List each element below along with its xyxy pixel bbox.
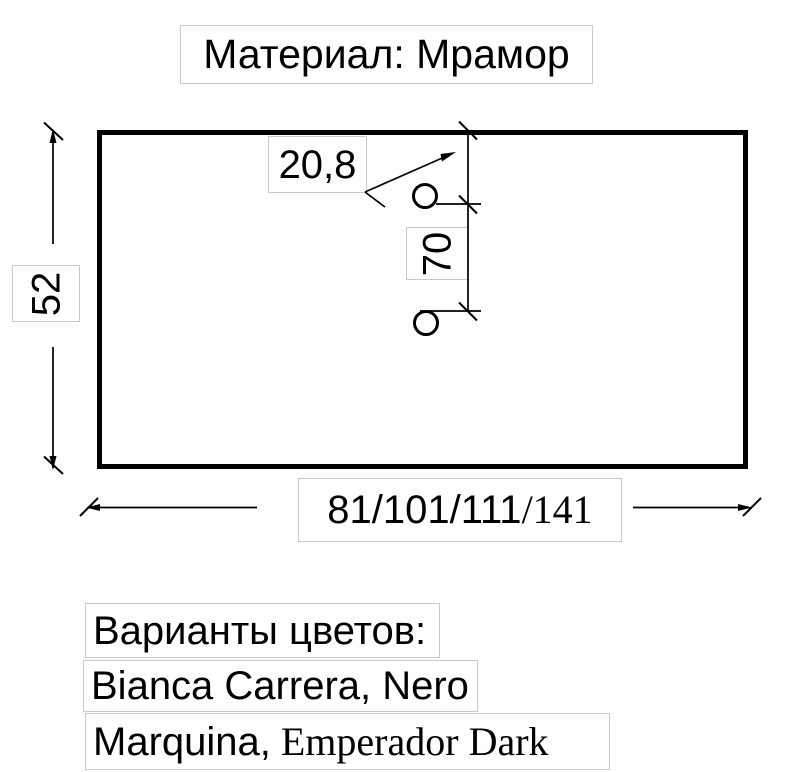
- color-options-line3: Marquina, Emperador Dark: [85, 713, 610, 770]
- drawing-page: Материал: Мрамор 20,8 70 52 81/101/111/1…: [0, 0, 790, 772]
- hole-offset-leader: [365, 152, 456, 207]
- leader-tail-line: [365, 192, 385, 207]
- height-dim-tick-bottom: [44, 457, 63, 475]
- width-dim-arrow-right-icon: [738, 504, 752, 511]
- width-dim-arrow-left-icon: [86, 504, 100, 511]
- color-options-line2: Bianca Carrera, Nero: [83, 660, 478, 712]
- hole-spacing-dimension: [420, 122, 481, 321]
- leader-line: [365, 156, 448, 193]
- color-options-line2-text: Bianca Carrera, Nero: [91, 666, 469, 706]
- height-dim-tick-top: [44, 123, 63, 141]
- width-options-serif: /141: [522, 490, 593, 530]
- hole-offset-value: 20,8: [279, 145, 357, 185]
- hole-dim-tick-top: [459, 122, 477, 140]
- width-dim-tick-left: [80, 498, 98, 516]
- height-dim-label: 52: [12, 265, 80, 322]
- hole-offset-dim-label: 20,8: [268, 136, 367, 193]
- material-title-text: Материал: Мрамор: [203, 34, 569, 75]
- width-options-sans: 81/101/111: [327, 490, 521, 530]
- height-dim-arrow-down-icon: [50, 456, 57, 470]
- color-options-heading-text: Варианты цветов:: [93, 611, 426, 651]
- hole-dim-tick-middle: [459, 196, 477, 214]
- hole-spacing-value: 70: [417, 231, 457, 276]
- hole-spacing-dim-label: 70: [406, 227, 468, 280]
- panel-rectangle: [100, 133, 746, 467]
- width-dim-label: 81/101/111/141: [298, 478, 622, 542]
- color-options-heading: Варианты цветов:: [85, 603, 440, 658]
- hole-dim-tick-bottom: [459, 303, 477, 321]
- color-options-line3-sans: Marquina,: [93, 722, 271, 762]
- leader-arrow-icon: [441, 152, 457, 162]
- color-options-line3-serif: Emperador Dark: [271, 722, 549, 762]
- material-title: Материал: Мрамор: [180, 25, 593, 84]
- height-dim-arrow-up-icon: [50, 129, 57, 143]
- width-dim-tick-right: [743, 498, 761, 516]
- height-value: 52: [26, 271, 66, 316]
- hole-top: [414, 185, 437, 208]
- hole-bottom: [415, 312, 438, 335]
